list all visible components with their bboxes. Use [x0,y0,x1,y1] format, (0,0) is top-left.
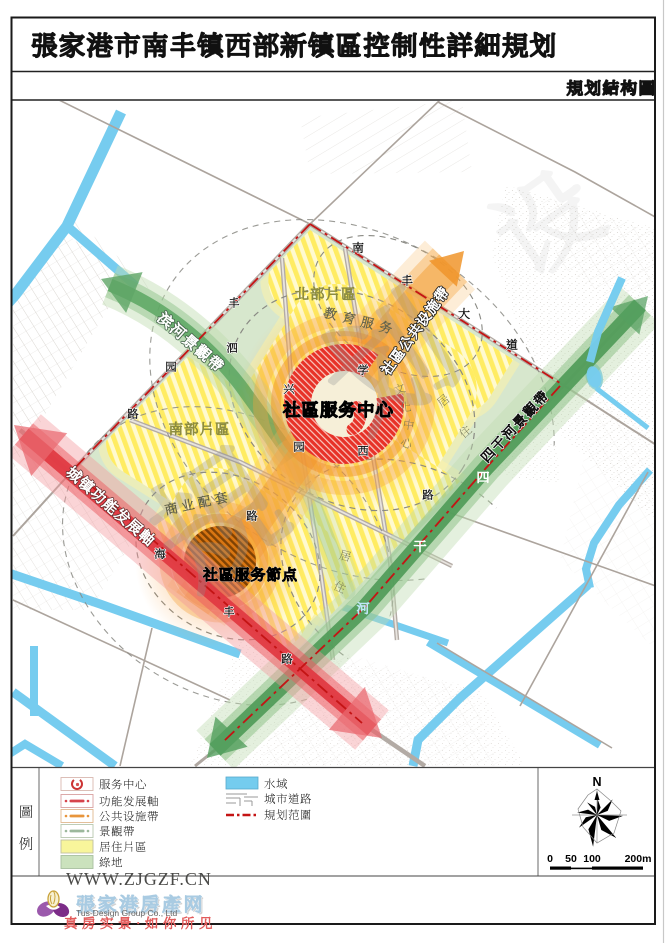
svg-text:50: 50 [565,853,577,865]
svg-text:100: 100 [583,853,601,865]
svg-text:N: N [592,775,601,789]
svg-text:WWW.ZJGZF.CN: WWW.ZJGZF.CN [66,869,212,889]
svg-text:0: 0 [547,853,553,865]
svg-text:Tus-Design Group Co., Ltd: Tus-Design Group Co., Ltd [76,908,178,918]
svg-text:200m: 200m [625,853,652,865]
